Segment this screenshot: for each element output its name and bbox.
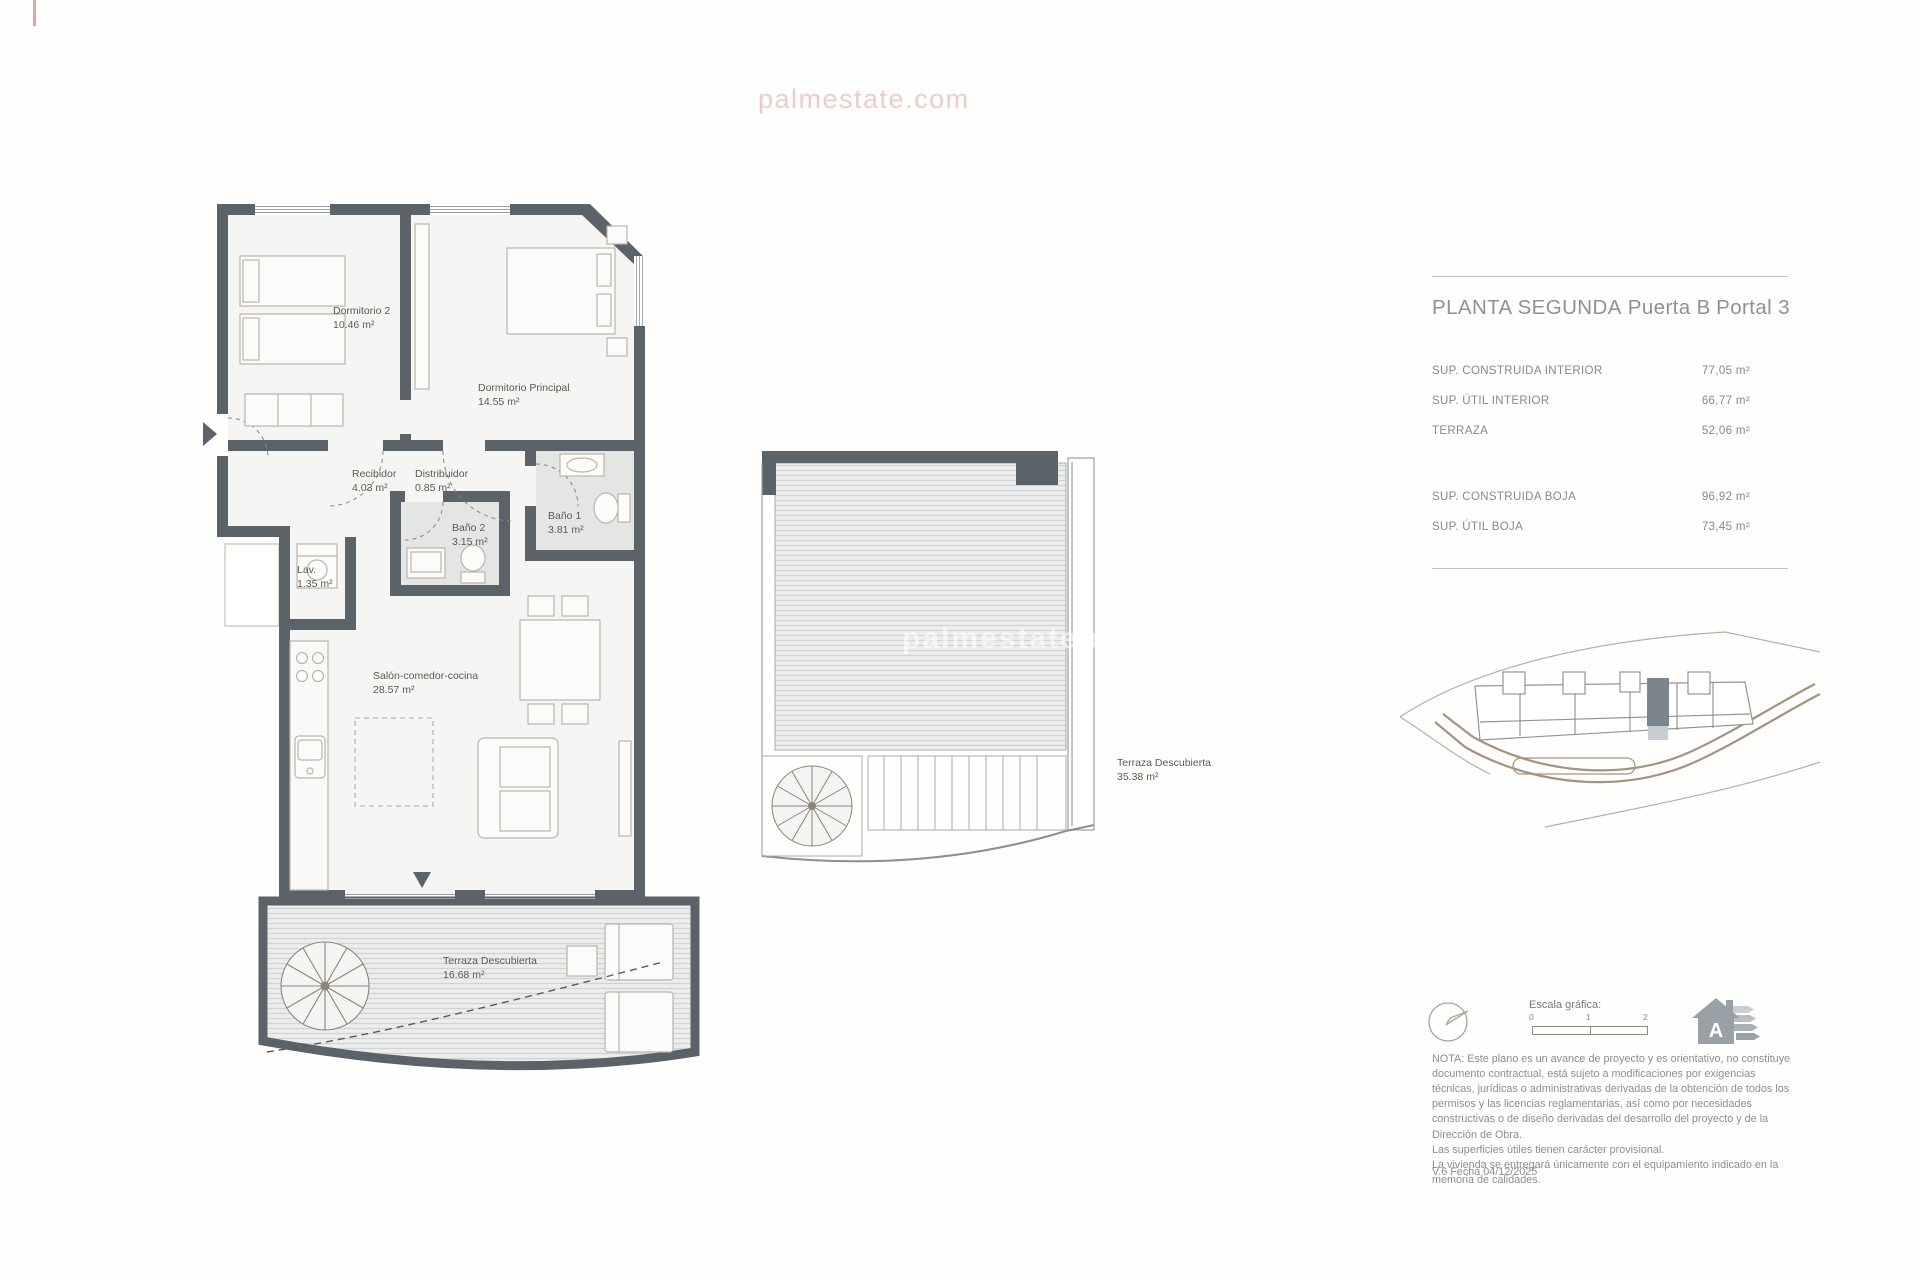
room-label-recibidor: Recibidor4.03 m²: [352, 468, 396, 495]
watermark-top: palmestate.com: [758, 84, 970, 115]
scale-bar-midtick: [1590, 1027, 1591, 1034]
room-label-bano-1: Baño 13.81 m²: [548, 510, 584, 537]
divider-top: [1432, 276, 1788, 277]
upper-terrace-plan: [750, 438, 1115, 883]
energy-letter: A: [1709, 1020, 1723, 1042]
area-row-construida-boja: SUP. CONSTRUIDA BOJA96,92 m²: [1432, 482, 1750, 512]
area-row-util-boja: SUP. ÚTIL BOJA73,45 m²: [1432, 512, 1750, 542]
pergola-slats: [868, 756, 1066, 830]
scale-bar: [1532, 1026, 1648, 1035]
title-planta: PLANTA SEGUNDA: [1432, 296, 1622, 320]
wardrobe-dorm2: [245, 394, 343, 426]
kitchen-counter: [290, 641, 328, 890]
sofa: [478, 738, 558, 838]
building-outline: [1475, 672, 1753, 740]
watermark-middle: palmestate.com: [902, 622, 1157, 656]
bed-dorm2-b: [240, 314, 345, 364]
upper-terrace-floor: [775, 463, 1066, 750]
north-compass-icon: [1424, 996, 1476, 1048]
area-row-terraza: TERRAZA52,06 m²: [1432, 416, 1750, 446]
room-label-dormitorio-principal: Dormitorio Principal14.55 m²: [478, 382, 570, 409]
version-date: V.6 Fecha 04/12/2025: [1432, 1166, 1537, 1178]
title-portal: Portal 3: [1716, 296, 1790, 320]
area-row-util-interior: SUP. ÚTIL INTERIOR66,77 m²: [1432, 386, 1750, 416]
room-label-lav: Lav.1.35 m²: [297, 564, 333, 591]
common-area-shaft: [225, 544, 279, 626]
area-row-construida-interior: SUP. CONSTRUIDA INTERIOR77,05 m²: [1432, 356, 1750, 386]
room-label-distribuidor: Distribuidor0.85 m²: [415, 468, 468, 495]
upper-spiral-staircase: [762, 756, 862, 856]
room-label-terraza-upper: Terraza Descubierta35.38 m²: [1117, 757, 1211, 784]
scale-tick-1: 1: [1586, 1012, 1591, 1022]
scale-tick-2: 2: [1643, 1012, 1648, 1022]
room-label-terraza: Terraza Descubierta16.68 m²: [443, 955, 537, 982]
title-puerta: Puerta B: [1628, 296, 1711, 320]
plan-sheet: palmestate.com: [0, 0, 1920, 1280]
room-label-dormitorio-2: Dormitorio 210.46 m²: [333, 305, 390, 332]
energy-rating-icon: A: [1686, 994, 1768, 1050]
divider-bottom: [1432, 568, 1788, 569]
highlighted-unit: [1647, 678, 1669, 726]
wardrobe-principal: [415, 224, 429, 389]
entry-arrow-icon: [203, 422, 217, 446]
room-label-salon: Salón-comedor-cocina28.57 m²: [373, 670, 478, 697]
site-location-map: [1395, 622, 1825, 837]
highlighted-unit-terrace: [1648, 726, 1668, 740]
red-corner-mark: [33, 0, 36, 26]
tv-bench: [619, 741, 631, 836]
spiral-staircase: [281, 942, 369, 1030]
scale-label: Escala gráfica:: [1529, 999, 1601, 1011]
plan-title: PLANTA SEGUNDA Puerta B Portal 3: [1432, 296, 1790, 320]
scale-tick-0: 0: [1529, 1012, 1534, 1022]
bed-dorm2-a: [240, 256, 345, 306]
room-label-bano-2: Baño 23.15 m²: [452, 522, 488, 549]
